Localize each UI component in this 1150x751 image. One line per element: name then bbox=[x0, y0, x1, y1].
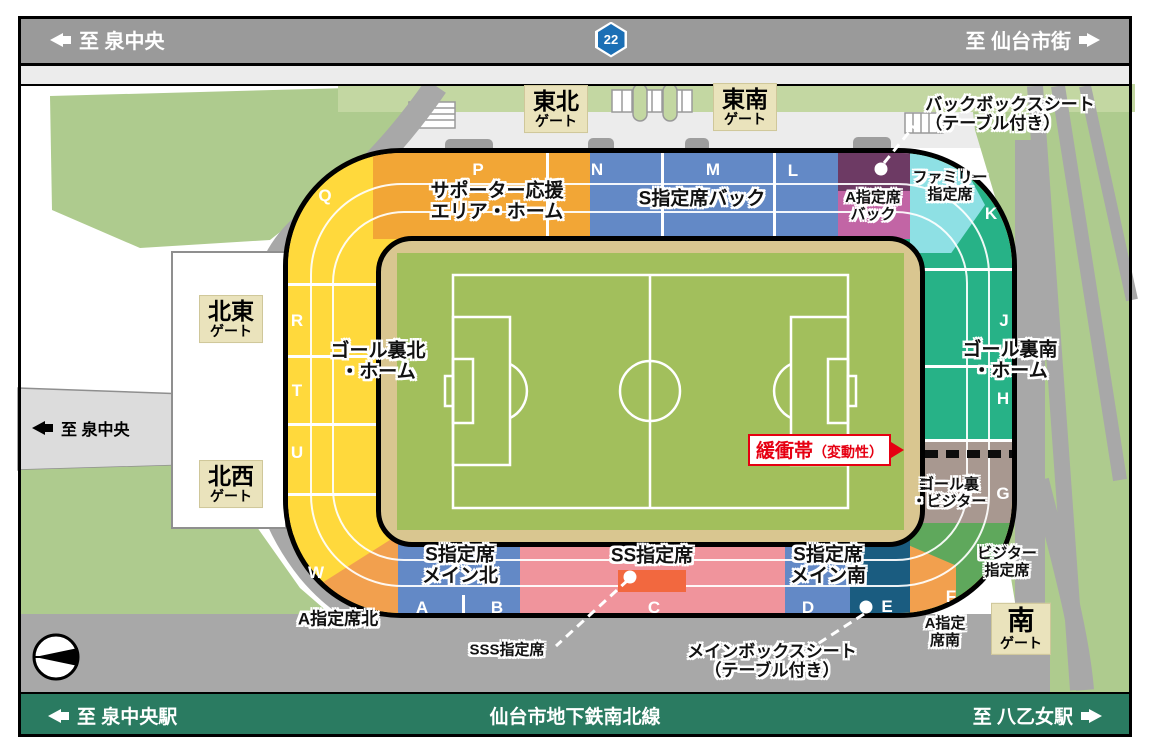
label-goal-back-visitor: ゴール裏・ビジター bbox=[912, 477, 987, 511]
block-letter-B: B bbox=[491, 598, 503, 618]
label-goal-back-north: ゴール裏北・ホーム bbox=[330, 341, 425, 384]
gate-east-north: 東北ゲート bbox=[524, 85, 588, 133]
block-letter-N: N bbox=[591, 160, 603, 180]
pillar-icon bbox=[663, 84, 677, 121]
block-letter-R: R bbox=[291, 311, 303, 331]
top-road-bar: 至 泉中央 22 至 仙台市街 bbox=[18, 16, 1132, 66]
subway-line-bar: 至 泉中央駅 仙台市地下鉄南北線 至 八乙女駅 bbox=[18, 692, 1132, 737]
block-letter-L: L bbox=[788, 161, 798, 181]
sidewalk-strip bbox=[18, 66, 1132, 86]
buffer-zone-dashes bbox=[925, 450, 1012, 458]
block-letter-H: H bbox=[997, 389, 1009, 409]
block-letter-M: M bbox=[706, 160, 720, 180]
rail-left: 至 泉中央駅 bbox=[48, 702, 177, 729]
label-s-main-north: S指定席メイン北 bbox=[422, 545, 498, 588]
route-22-shield-icon: 22 bbox=[595, 22, 627, 58]
pillar-icon bbox=[633, 84, 647, 121]
block-letter-F: F bbox=[946, 587, 956, 607]
block-letter-P: P bbox=[472, 160, 483, 180]
top-road-left: 至 泉中央 bbox=[50, 25, 165, 54]
stadium-map-page: { "top_road": {"left_label": "至 泉中央", "r… bbox=[0, 0, 1150, 751]
gate-north-west: 北西ゲート bbox=[199, 460, 263, 508]
section-a-north-block[interactable] bbox=[316, 531, 404, 613]
section-back-box-seat-block[interactable] bbox=[838, 153, 910, 191]
left-arrow-icon bbox=[48, 709, 69, 723]
block-letter-W: W bbox=[308, 563, 324, 583]
label-supporter-area: サポーター応援エリア・ホーム bbox=[430, 181, 563, 224]
label-main-box-seat: メインボックスシート（テーブル付き） bbox=[687, 642, 857, 680]
sss-seat-dot bbox=[624, 571, 637, 584]
rail-center: 仙台市地下鉄南北線 bbox=[489, 702, 660, 729]
label-s-main-south: S指定席メイン南 bbox=[790, 545, 866, 588]
main-box-seat-dot bbox=[860, 601, 873, 614]
left-arrow-icon bbox=[50, 33, 71, 47]
gate-east-south: 東南ゲート bbox=[713, 83, 777, 131]
left-arrow-icon bbox=[32, 421, 53, 435]
block-letter-C: C bbox=[648, 598, 660, 618]
back-box-seat-dot bbox=[875, 163, 888, 176]
buffer-zone-callout: 緩衝帯（変動性） bbox=[748, 434, 891, 466]
pitch bbox=[381, 241, 920, 542]
block-letter-E: E bbox=[881, 597, 892, 617]
block-letter-U: U bbox=[291, 443, 303, 463]
rail-right: 至 八乙女駅 bbox=[973, 702, 1102, 729]
block-letter-Q: Q bbox=[318, 186, 331, 206]
label-a-reserved-back: A指定席バック bbox=[845, 190, 901, 224]
label-visitor-reserved: ビジター指定席 bbox=[977, 546, 1037, 580]
block-letter-K: K bbox=[985, 204, 997, 224]
label-a-reserved-north: A指定席北 bbox=[298, 609, 378, 628]
block-letter-T: T bbox=[292, 381, 302, 401]
field-track bbox=[376, 236, 925, 547]
label-goal-back-south: ゴール裏南・ホーム bbox=[962, 340, 1057, 383]
block-letter-G: G bbox=[996, 484, 1009, 504]
gate-north-east: 北東ゲート bbox=[199, 295, 263, 343]
block-letter-J: J bbox=[999, 311, 1008, 331]
gate-south: 南ゲート bbox=[991, 603, 1051, 655]
label-back-box-seat: バックボックスシート（テーブル付き） bbox=[925, 95, 1095, 133]
block-letter-A: A bbox=[416, 598, 428, 618]
label-ss-reserved: SS指定席 bbox=[611, 545, 693, 566]
label-s-reserved-back: S指定席バック bbox=[639, 188, 766, 209]
right-arrow-icon bbox=[1079, 33, 1100, 47]
top-road-right: 至 仙台市街 bbox=[965, 25, 1100, 54]
right-arrow-icon bbox=[1081, 709, 1102, 723]
label-a-reserved-south: A指定席南 bbox=[925, 616, 966, 650]
road-west-label: 至 泉中央 bbox=[32, 416, 129, 440]
label-sss-reserved: SSS指定席 bbox=[469, 643, 544, 660]
block-letter-D: D bbox=[802, 598, 814, 618]
label-family-reserved: ファミリー指定席 bbox=[912, 170, 987, 204]
